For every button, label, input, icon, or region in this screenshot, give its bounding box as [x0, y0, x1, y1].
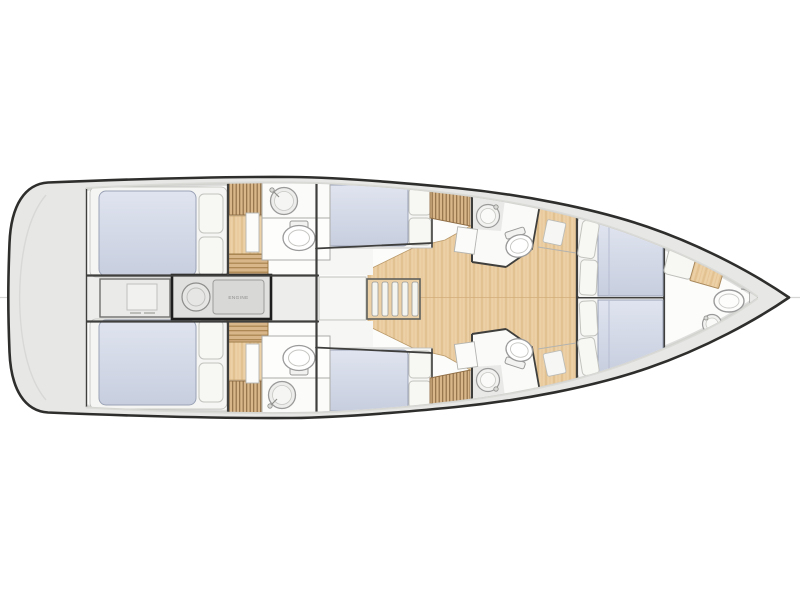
stern-locker: [100, 279, 170, 317]
double-berth-mattress: [99, 320, 196, 405]
sink-icon: [268, 382, 296, 409]
aft-cabin-port: [90, 187, 227, 277]
door: [246, 213, 259, 252]
louvered-locker: [229, 381, 262, 413]
double-berth-mattress: [99, 191, 196, 276]
double-berth-mattress: [320, 185, 408, 246]
aft-cabin-starboard: [90, 319, 227, 409]
seat-panel: [543, 350, 566, 376]
floor-plan-canvas: ENGINE: [0, 0, 800, 600]
engine-label: ENGINE: [228, 295, 248, 300]
mid-cabin-port: [318, 183, 432, 248]
yacht-floor-plan: ENGINE: [0, 0, 800, 600]
sink-icon: [477, 205, 500, 228]
sink-icon: [477, 369, 500, 392]
seat-panel: [543, 219, 566, 245]
louvered-locker: [229, 183, 262, 215]
door: [454, 227, 477, 255]
door: [454, 342, 477, 370]
companionway-stairs: [367, 279, 420, 319]
companionway-landing: [319, 277, 366, 320]
sink-icon: [270, 188, 298, 215]
mid-cabin-starboard: [318, 348, 432, 413]
engine-room: ENGINE: [172, 275, 271, 319]
hatch: [127, 284, 157, 310]
generator: [182, 283, 210, 311]
door: [246, 344, 259, 383]
interior-layout: ENGINE: [86, 183, 758, 413]
double-berth-mattress: [320, 350, 408, 411]
